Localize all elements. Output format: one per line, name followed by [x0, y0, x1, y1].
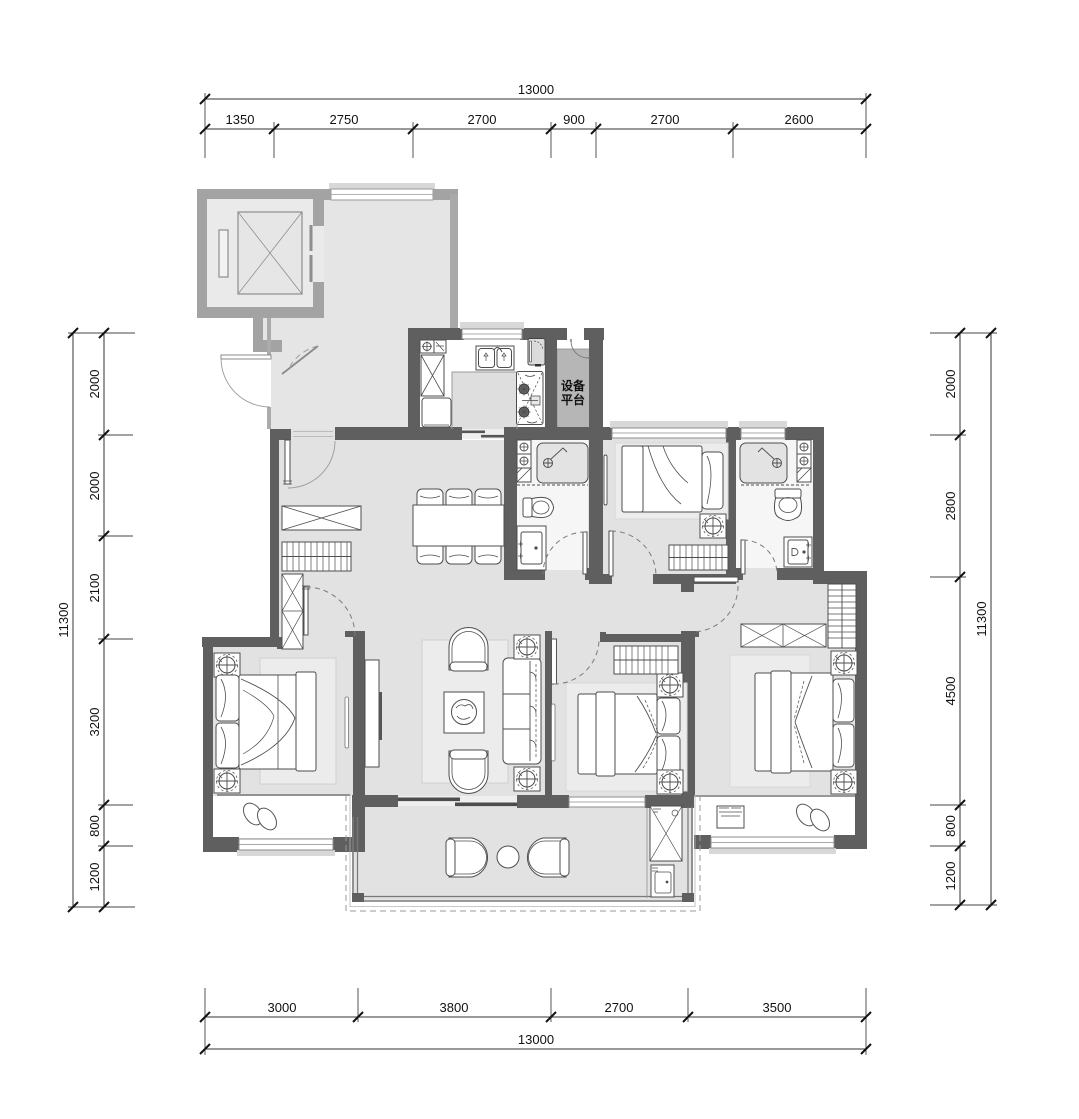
svg-text:设备: 设备: [561, 378, 586, 393]
svg-text:800: 800: [943, 815, 958, 837]
svg-text:2000: 2000: [87, 472, 102, 501]
svg-text:2100: 2100: [87, 574, 102, 603]
svg-text:3200: 3200: [87, 708, 102, 737]
svg-text:11300: 11300: [56, 602, 71, 637]
svg-text:4500: 4500: [943, 677, 958, 706]
svg-text:3000: 3000: [268, 1000, 297, 1015]
svg-text:11300: 11300: [974, 601, 989, 636]
svg-text:3500: 3500: [763, 1000, 792, 1015]
svg-text:2700: 2700: [651, 112, 680, 127]
svg-text:1350: 1350: [226, 112, 255, 127]
svg-text:2000: 2000: [87, 370, 102, 399]
svg-text:2750: 2750: [330, 112, 359, 127]
svg-text:13000: 13000: [518, 82, 554, 97]
svg-text:2700: 2700: [468, 112, 497, 127]
svg-text:2000: 2000: [943, 370, 958, 399]
svg-text:1200: 1200: [943, 862, 958, 891]
svg-text:2700: 2700: [605, 1000, 634, 1015]
svg-text:3800: 3800: [440, 1000, 469, 1015]
svg-text:2600: 2600: [785, 112, 814, 127]
svg-text:平台: 平台: [561, 392, 585, 407]
svg-text:13000: 13000: [518, 1032, 554, 1047]
svg-text:1200: 1200: [87, 863, 102, 892]
svg-text:800: 800: [87, 815, 102, 837]
svg-text:2800: 2800: [943, 492, 958, 521]
svg-text:900: 900: [563, 112, 585, 127]
